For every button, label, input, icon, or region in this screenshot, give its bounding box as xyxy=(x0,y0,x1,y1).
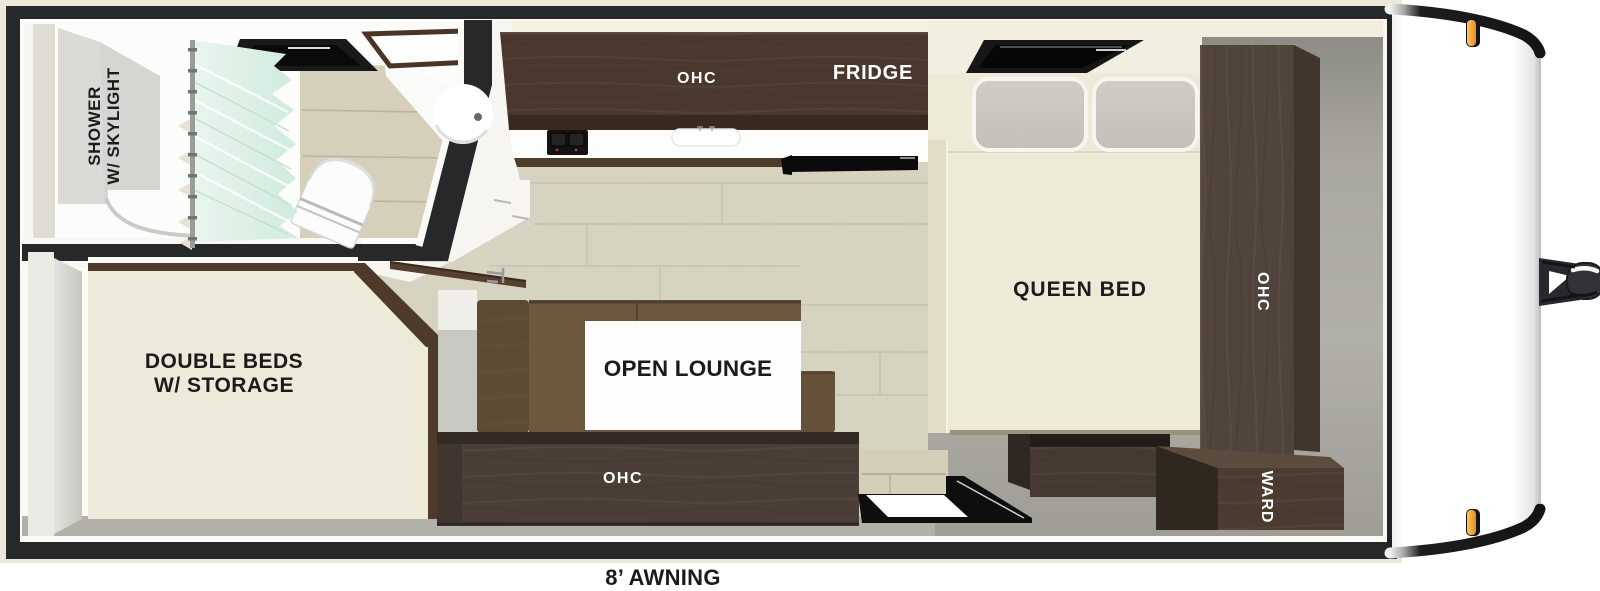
svg-text:DOUBLE BEDS: DOUBLE BEDS xyxy=(145,350,303,373)
svg-text:OHC: OHC xyxy=(1254,272,1271,312)
svg-text:FRIDGE: FRIDGE xyxy=(833,62,913,84)
svg-text:SHOWER: SHOWER xyxy=(85,86,104,166)
svg-text:OPEN LOUNGE: OPEN LOUNGE xyxy=(604,356,772,381)
svg-text:OHC: OHC xyxy=(603,470,643,487)
svg-text:8’ AWNING: 8’ AWNING xyxy=(605,565,721,586)
svg-text:WARD: WARD xyxy=(1258,471,1275,524)
svg-text:W/ SKYLIGHT: W/ SKYLIGHT xyxy=(104,67,123,184)
svg-text:W/ STORAGE: W/ STORAGE xyxy=(154,374,294,397)
svg-text:QUEEN BED: QUEEN BED xyxy=(1013,278,1147,301)
svg-text:OHC: OHC xyxy=(677,70,717,87)
